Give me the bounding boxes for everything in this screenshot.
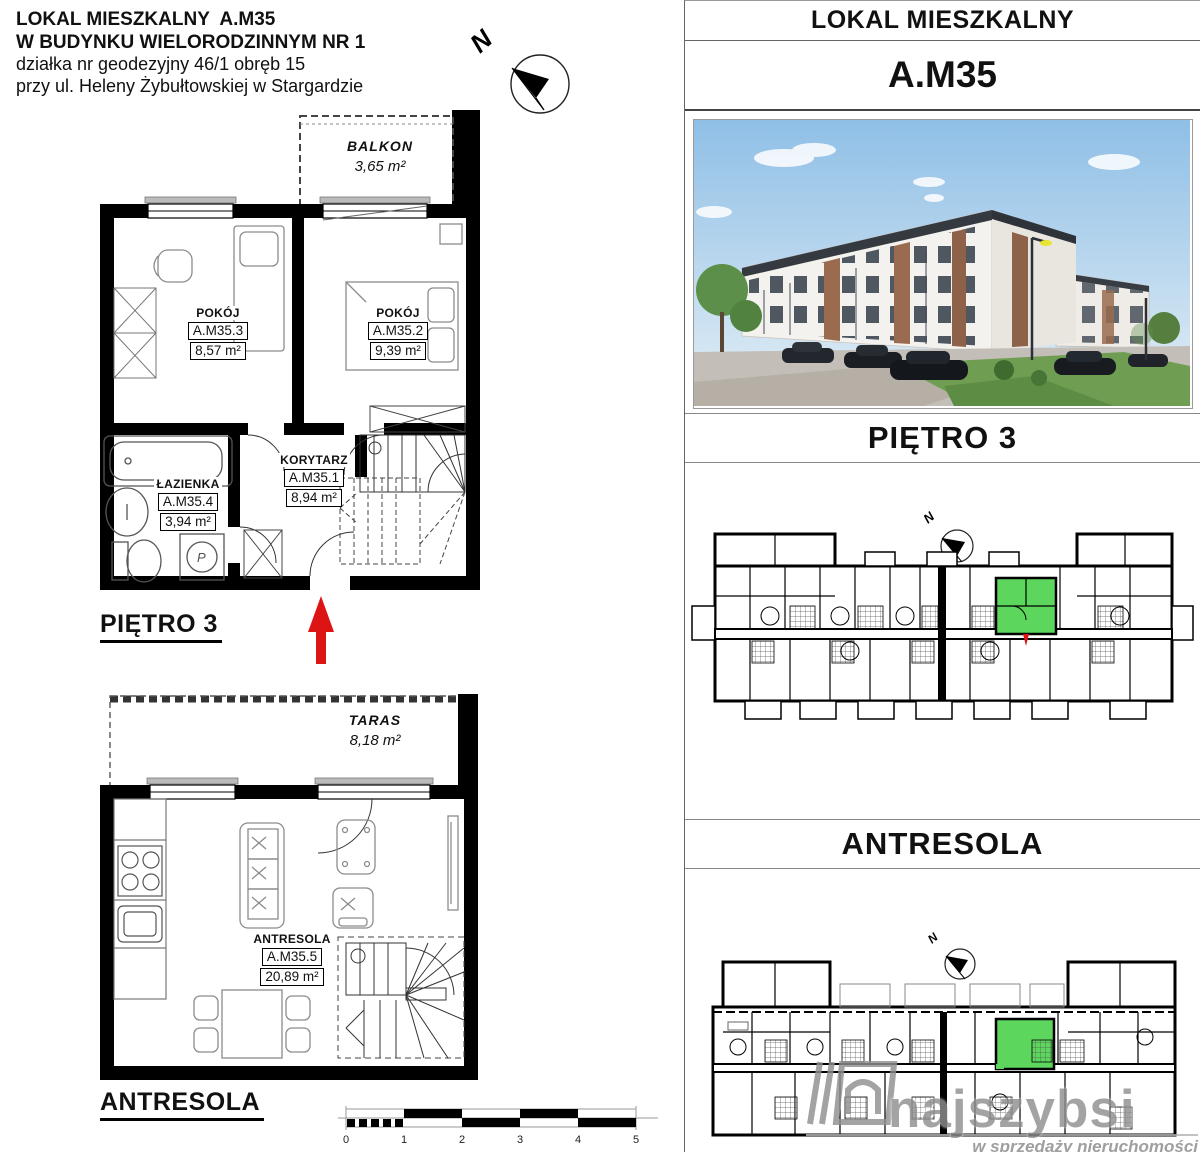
svg-text:1: 1 <box>401 1134 407 1146</box>
floorplan-pietro3: P <box>88 104 484 664</box>
svg-text:3: 3 <box>517 1134 523 1146</box>
balkon-name: BALKON <box>347 138 413 154</box>
room-label-korytarz: KORYTARZ A.M35.1 8,94 m² <box>276 453 352 507</box>
overview-plan-pietro3: N <box>690 466 1195 814</box>
panel-antresola-title: ANTRESOLA <box>685 819 1200 869</box>
compass-icon: N <box>925 930 975 979</box>
taras-label: TARAS 8,18 m² <box>325 712 425 749</box>
balkon-area: 3,65 m² <box>355 158 406 175</box>
room-label-lazienka: ŁAZIENKA A.M35.4 3,94 m² <box>150 477 226 531</box>
title-line-4: przy ul. Heleny Żybułtowskiej w Stargard… <box>16 76 365 98</box>
scale-numbers: 0 1 2 3 4 5 <box>343 1134 639 1146</box>
overview-plan-antresola: N <box>690 872 1195 1150</box>
compass-n-label: N <box>464 23 499 59</box>
svg-text:4: 4 <box>575 1134 581 1146</box>
room-label-pokoj2: POKÓJ A.M35.2 9,39 m² <box>360 306 436 360</box>
svg-text:2: 2 <box>459 1134 465 1146</box>
dining-set <box>194 990 310 1058</box>
room-label-antresola: ANTRESOLA A.M35.5 20,89 m² <box>252 932 332 986</box>
floorplan-antresola <box>88 690 484 1094</box>
building-photo <box>693 119 1193 409</box>
room-label-pokoj3: POKÓJ A.M35.3 8,57 m² <box>180 306 256 360</box>
brochure-page: LOKAL MIESZKALNY A.M35 W BUDYNKU WIELORO… <box>0 0 1200 1152</box>
taras-name: TARAS <box>349 712 401 728</box>
svg-text:0: 0 <box>343 1134 349 1146</box>
highlighted-unit <box>996 1019 1054 1069</box>
scale-bar: 0 1 2 3 4 5 <box>338 1098 660 1150</box>
svg-text:5: 5 <box>633 1134 639 1146</box>
svg-text:N: N <box>920 508 937 526</box>
stairs <box>338 937 464 1058</box>
title-line-1: LOKAL MIESZKALNY A.M35 <box>16 8 365 31</box>
taras-area: 8,18 m² <box>350 732 401 749</box>
title-line-2: W BUDYNKU WIELORODZINNYM NR 1 <box>16 31 365 54</box>
panel-floor-title: PIĘTRO 3 <box>685 413 1200 463</box>
panel-unit-number: A.M35 <box>685 41 1200 111</box>
svg-text:P: P <box>197 550 206 565</box>
antresola-heading: ANTRESOLA <box>100 1088 264 1121</box>
balkon-label: BALKON 3,65 m² <box>330 138 430 175</box>
title-line-3: działka nr geodezyjny 46/1 obręb 15 <box>16 54 365 76</box>
outer-walls <box>100 204 480 590</box>
building-outline <box>713 962 1175 1135</box>
title-block: LOKAL MIESZKALNY A.M35 W BUDYNKU WIELORO… <box>16 8 365 98</box>
kitchen <box>114 799 166 999</box>
entrance-arrow <box>308 596 334 664</box>
svg-text:N: N <box>925 930 941 947</box>
living-furniture <box>240 816 458 928</box>
building-outline <box>692 534 1193 719</box>
panel-title: LOKAL MIESZKALNY <box>685 1 1200 41</box>
pietro3-heading: PIĘTRO 3 <box>100 610 222 643</box>
